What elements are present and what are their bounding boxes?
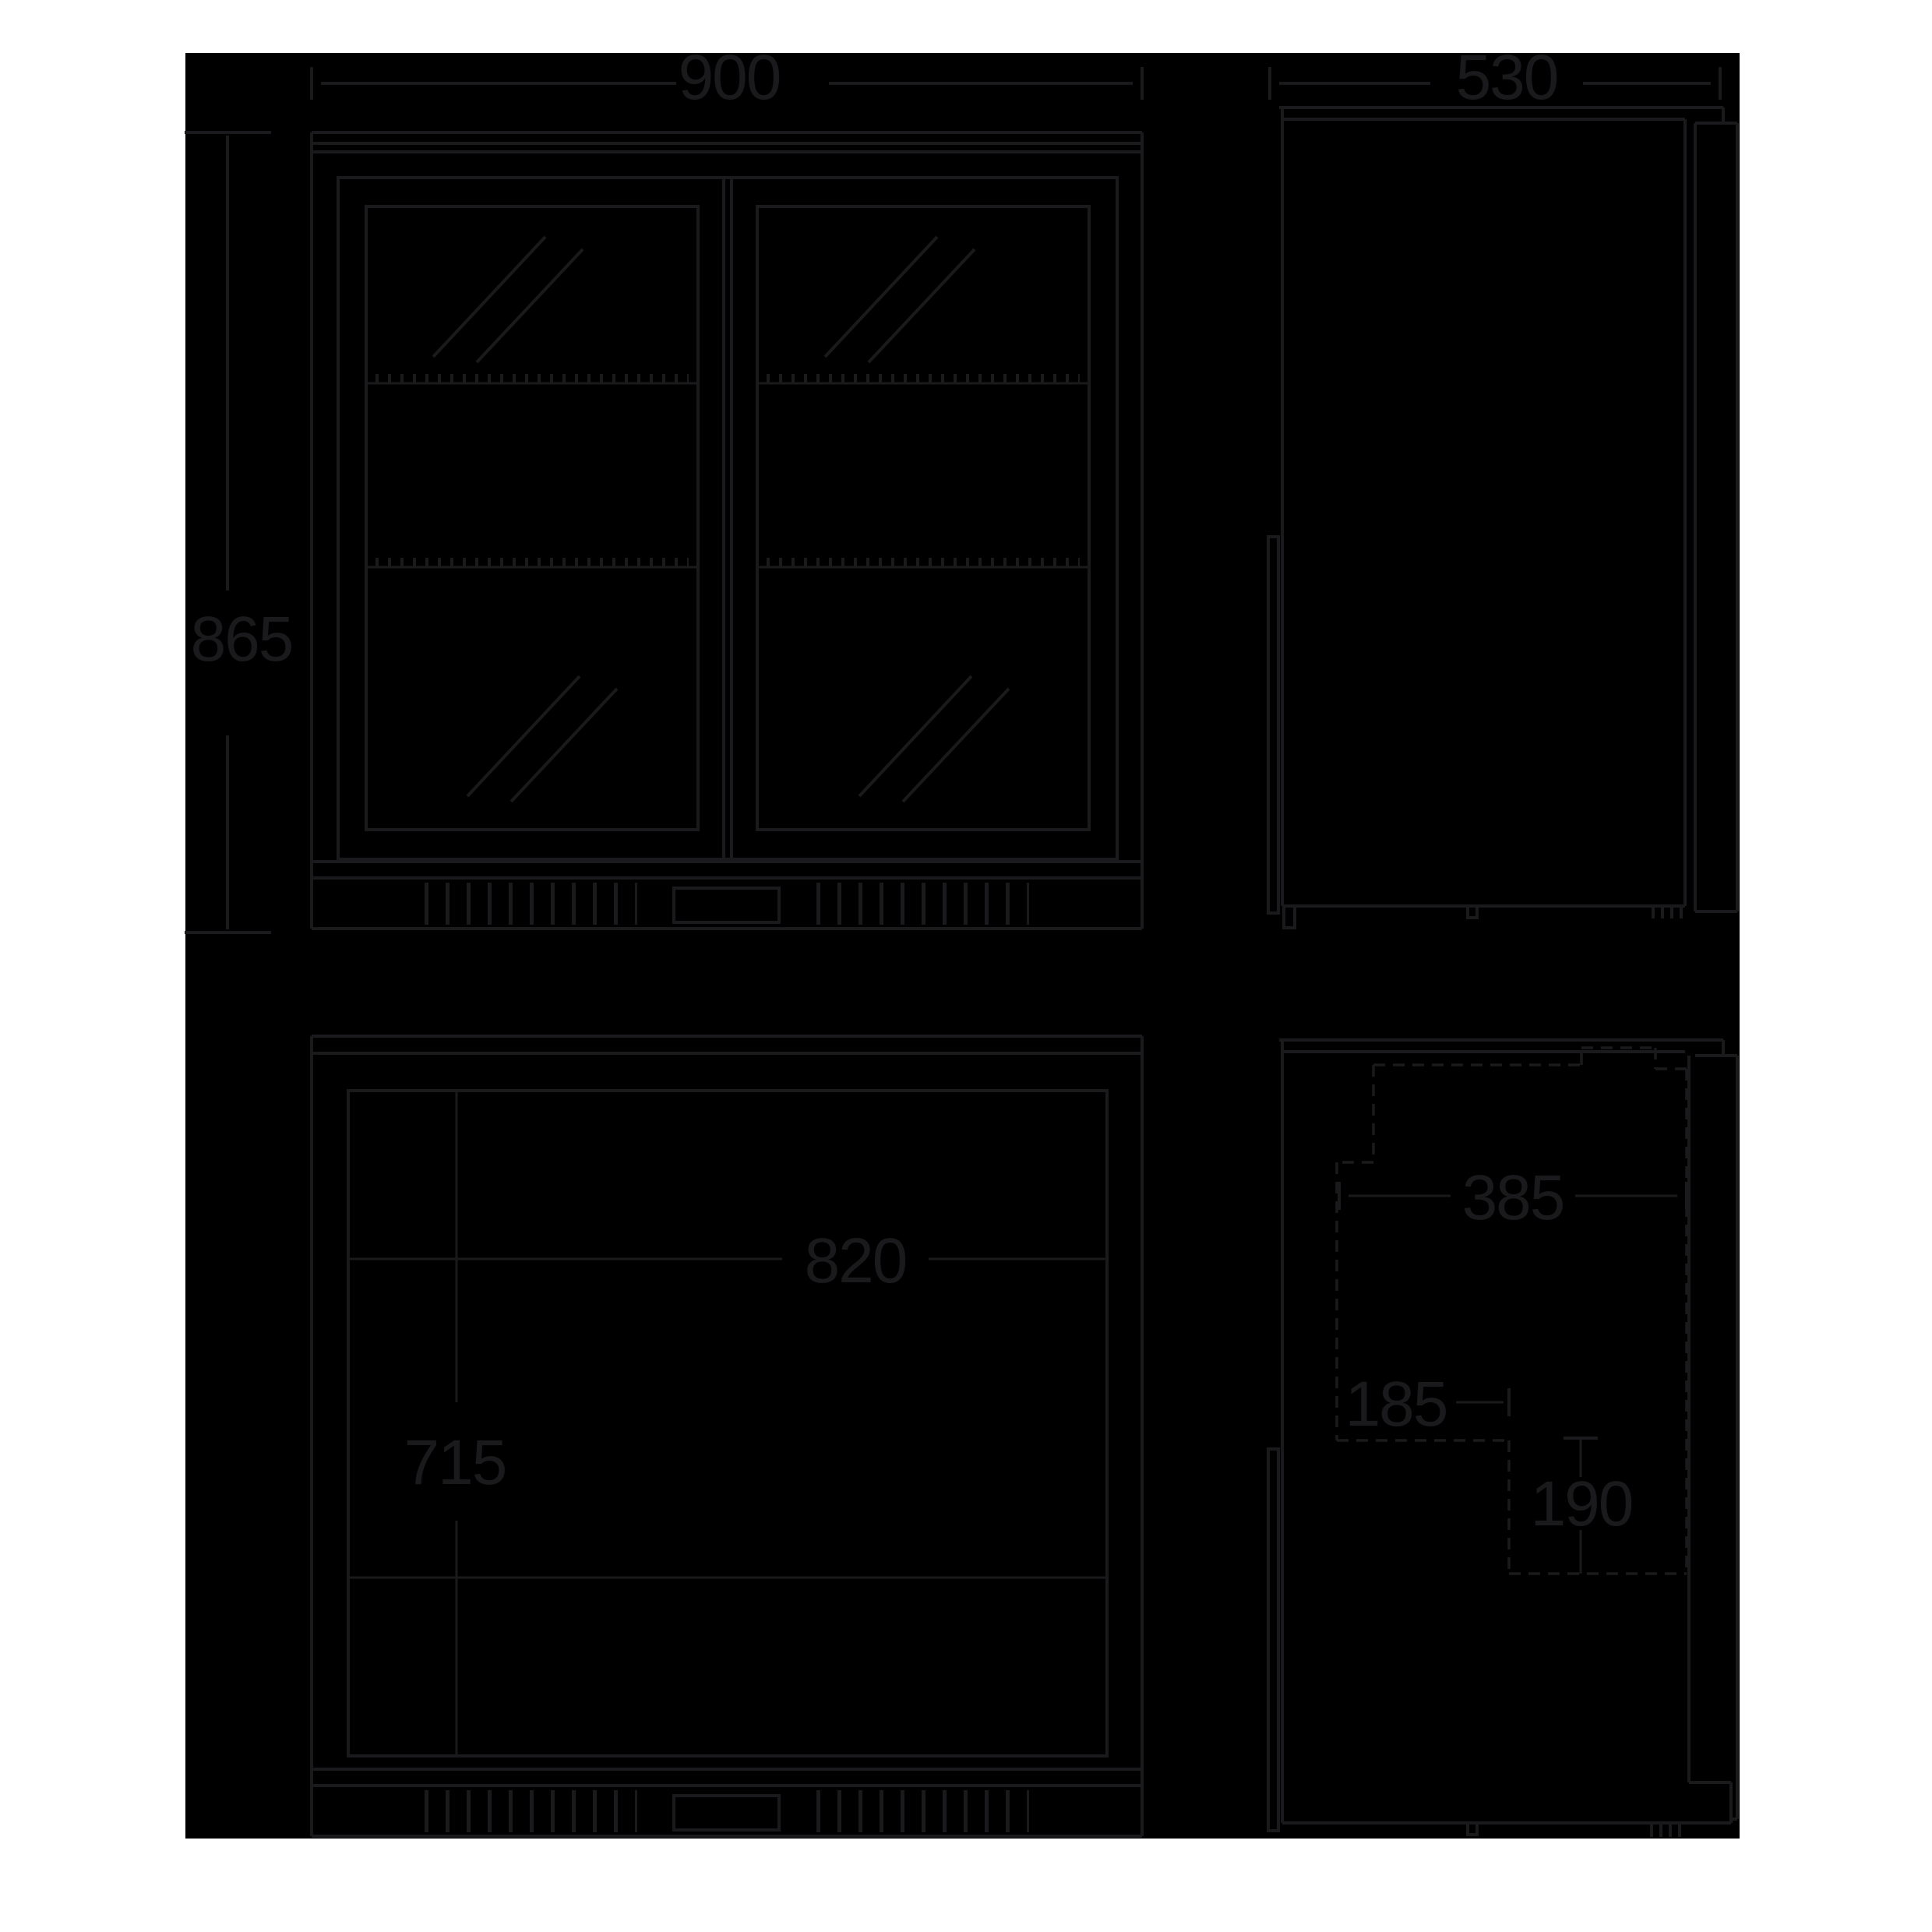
interior-width-dim-label: 820 <box>805 1225 907 1296</box>
dimension-diagram: 900 865 <box>0 0 1932 1932</box>
side-depth-dim-label: 530 <box>1456 42 1558 113</box>
recess-depth-dim-label: 185 <box>1345 1369 1447 1440</box>
drawing-page: 900 865 <box>0 0 1932 1932</box>
recess-height-dim-label: 190 <box>1531 1468 1633 1539</box>
front-height-dim-label: 865 <box>191 604 293 675</box>
drawing-canvas <box>185 53 1740 1839</box>
front-width-dim-label: 900 <box>679 42 781 113</box>
interior-depth-dim-label: 385 <box>1462 1162 1564 1233</box>
interior-height-dim-label: 715 <box>404 1427 506 1498</box>
